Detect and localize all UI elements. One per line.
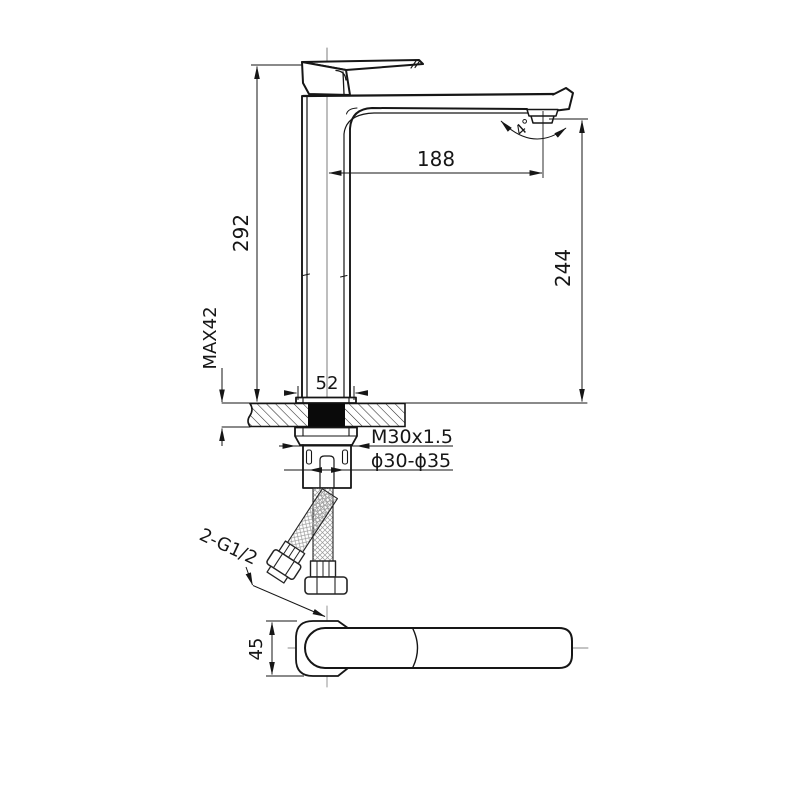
column-break-ticks [303,274,347,277]
front-view [296,48,573,403]
hose-hex-nut [305,577,347,594]
spout-underside-outer [350,108,527,129]
threaded-shank [303,445,351,488]
base-flange [296,398,356,404]
label-thread-spec: M30x1.5 [371,426,453,448]
plan-view [288,606,588,687]
dimension-annotations [222,65,588,676]
label-hole-diameter: ϕ30-ϕ35 [371,450,451,472]
spout-tip [553,88,573,111]
label-outlet-height: 244 [551,249,575,287]
shank-slot-right [343,450,348,464]
label-overall-height: 292 [229,214,253,252]
spout-underside-inner [344,113,528,134]
label-hose-connection: 2-G1/2 [196,524,261,569]
label-base-width: 52 [316,373,339,394]
dimension-labels: 292 MAX42 188 244 52 M30x1.5 ϕ30-ϕ35 2-G… [196,115,575,661]
drawing-canvas: 292 MAX42 188 244 52 M30x1.5 ϕ30-ϕ35 2-G… [0,0,800,800]
shank-slot-left [307,450,312,464]
aerator [527,110,558,124]
leader-g12-seg1 [246,567,253,585]
label-max-deck-thickness: MAX42 [200,306,221,369]
faucet-technical-drawing: 292 MAX42 188 244 52 M30x1.5 ϕ30-ϕ35 2-G… [0,0,800,800]
mounting-hole-gasket [308,404,345,428]
supply-hoses [262,485,347,594]
plan-body-outline [305,628,572,668]
label-top-view-width: 45 [246,638,267,661]
shank-center-channel [320,456,334,488]
label-spout-reach: 188 [417,147,455,171]
